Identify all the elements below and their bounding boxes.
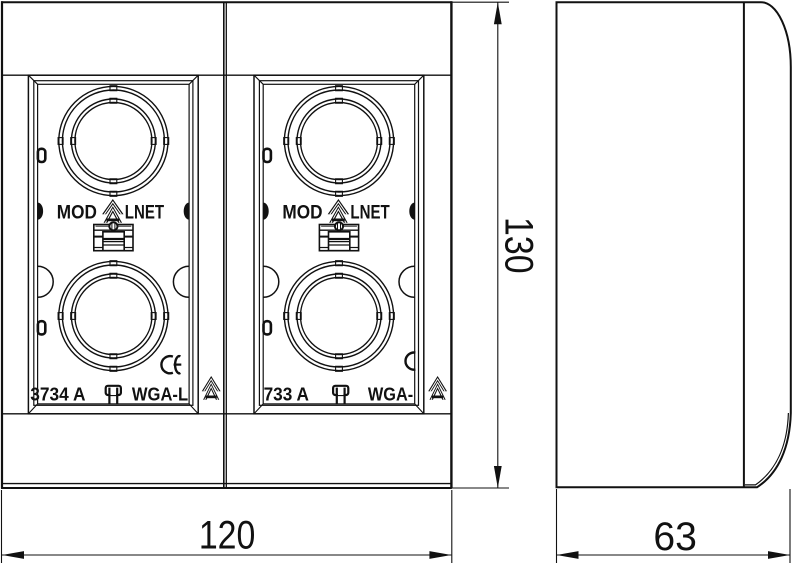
svg-text:LNET: LNET	[350, 202, 389, 224]
svg-text:MOD: MOD	[57, 202, 97, 224]
svg-text:WGA-L: WGA-L	[132, 383, 188, 404]
svg-text:120: 120	[199, 513, 256, 557]
svg-text:LNET: LNET	[125, 202, 164, 224]
svg-text:63: 63	[653, 515, 697, 559]
svg-text:3734 A: 3734 A	[30, 383, 85, 404]
svg-text:MOD: MOD	[282, 202, 322, 224]
svg-text:733 A: 733 A	[264, 383, 309, 404]
svg-text:WGA-: WGA-	[368, 383, 413, 404]
svg-text:130: 130	[496, 217, 540, 273]
